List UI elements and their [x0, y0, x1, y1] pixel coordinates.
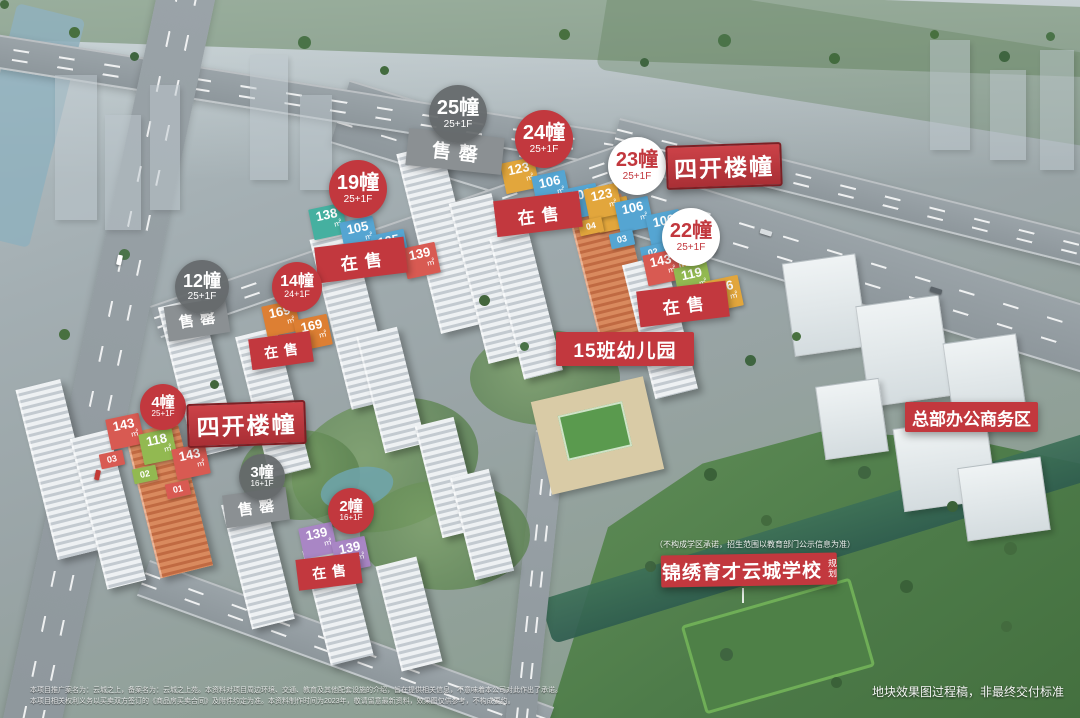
- background-building: [990, 70, 1026, 160]
- building-badge-14: 14幢 24+1F: [272, 262, 322, 312]
- building-floors: 25+1F: [344, 194, 373, 205]
- school-name: 锦绣育才云城学校: [662, 555, 822, 585]
- building-floors: 25+1F: [188, 291, 217, 302]
- building-badge-25: 25幢 25+1F: [429, 85, 487, 143]
- building-name: 14幢: [280, 274, 314, 291]
- building-badge-24: 24幢 25+1F: [515, 110, 573, 168]
- building-name: 25幢: [437, 98, 479, 119]
- kindergarten-banner: 15班幼儿园: [556, 332, 694, 366]
- tree-cluster: [0, 0, 9, 9]
- unit-number-chip: 03: [99, 450, 126, 470]
- building-name: 2幢: [339, 499, 362, 515]
- background-building: [930, 40, 970, 150]
- building-name: 19幢: [337, 173, 379, 194]
- building-name: 24幢: [523, 123, 565, 144]
- building-badge-4: 4幢 25+1F: [140, 384, 186, 430]
- background-building: [250, 55, 288, 180]
- four-open-banner: 四开楼幢: [665, 142, 782, 190]
- unit-area-tag: 143㎡: [171, 443, 211, 480]
- building-badge-2: 2幢 16+1F: [328, 488, 374, 534]
- building-name: 23幢: [616, 150, 658, 171]
- disclaimer-text: 本项目推广案名为：云城之上，备案名为：云城之上苑。本资料对项目周边环境、交通、教…: [30, 686, 590, 707]
- building-badge-19: 19幢 25+1F: [329, 160, 387, 218]
- building-floors: 16+1F: [340, 514, 363, 523]
- building-floors: 16+1F: [251, 480, 274, 489]
- background-building: [55, 75, 97, 220]
- building-name: 3幢: [250, 465, 273, 481]
- office-block: [782, 253, 868, 356]
- building-badge-22: 22幢 25+1F: [662, 208, 720, 266]
- building-badge-3: 3幢 16+1F: [239, 454, 285, 500]
- render-note: 地块效果图过程稿，非最终交付标准: [872, 683, 1064, 700]
- school-note: （不构成学区承诺，招生范围以教育部门公示信息为准）: [630, 539, 880, 550]
- background-building: [1040, 50, 1074, 170]
- building-floors: 25+1F: [152, 410, 175, 419]
- background-building: [150, 85, 180, 210]
- building-floors: 24+1F: [284, 290, 310, 300]
- office-block: [957, 457, 1050, 542]
- school-plan-tag: 规划: [827, 558, 836, 578]
- business-district-banner: 总部办公商务区: [905, 402, 1038, 432]
- school-leader-line: [742, 588, 744, 603]
- background-building: [300, 95, 332, 190]
- building-floors: 25+1F: [530, 144, 559, 155]
- background-building: [105, 115, 141, 230]
- four-open-banner: 四开楼幢: [186, 400, 306, 448]
- building-badge-12: 12幢 25+1F: [175, 260, 229, 314]
- site-aerial-render: 25幢 25+1F 售罄 24幢 25+1F 123㎡ 106㎡ 106㎡ 12…: [0, 0, 1080, 718]
- building-floors: 25+1F: [623, 171, 652, 182]
- building-floors: 25+1F: [444, 119, 473, 130]
- school-banner: 锦绣育才云城学校 规划: [661, 552, 838, 587]
- building-badge-23: 23幢 25+1F: [608, 137, 666, 195]
- building-name: 4幢: [151, 395, 174, 411]
- disclaimer-line: 本项目相关权利义务以买卖双方签订的《商品房买卖合同》及附件约定为准。本资料制作时…: [30, 697, 590, 708]
- building-name: 12幢: [183, 272, 221, 291]
- building-floors: 25+1F: [677, 242, 706, 253]
- office-block: [815, 378, 889, 460]
- building-name: 22幢: [670, 221, 712, 242]
- disclaimer-line: 本项目推广案名为：云城之上，备案名为：云城之上苑。本资料对项目周边环境、交通、教…: [30, 686, 590, 697]
